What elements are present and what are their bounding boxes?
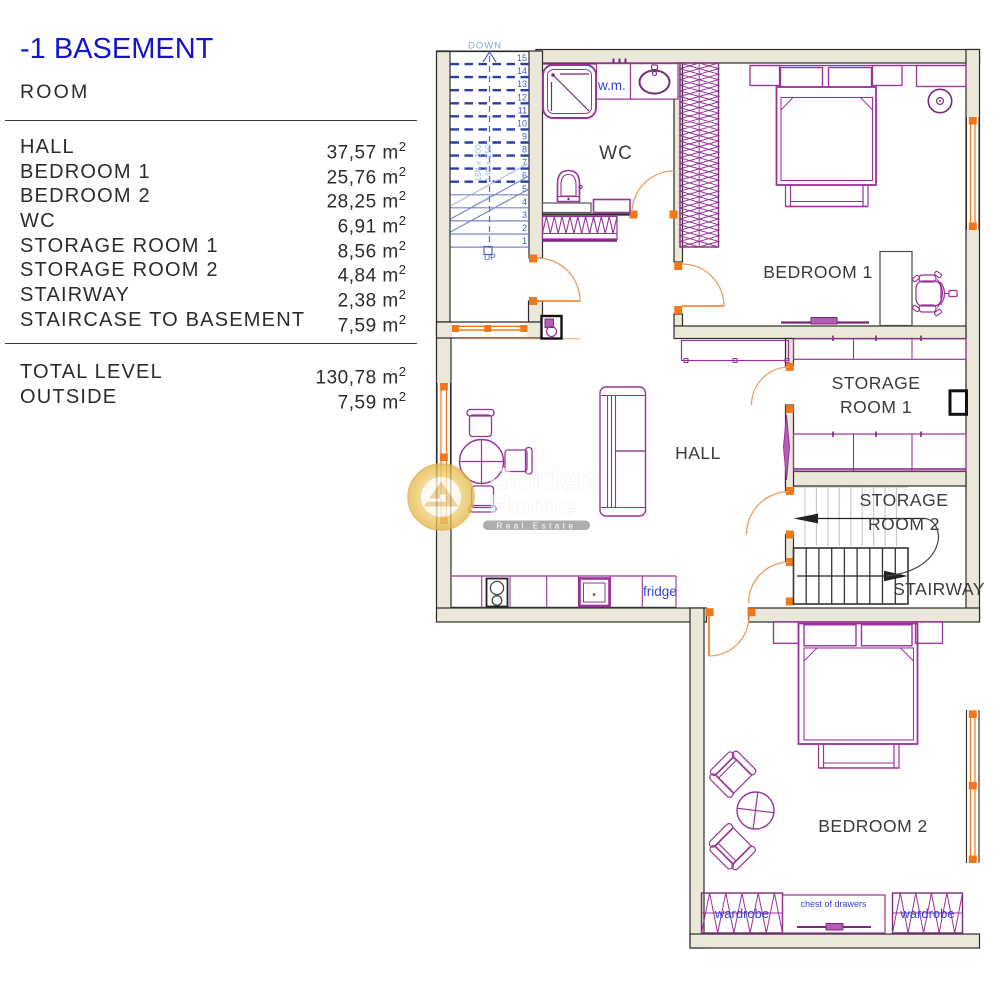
svg-text:2: 2 xyxy=(522,223,527,233)
svg-text:12: 12 xyxy=(517,92,527,102)
svg-text:13: 13 xyxy=(517,79,527,89)
svg-text:DOWN: DOWN xyxy=(468,41,502,52)
svg-text:WC: WC xyxy=(599,143,633,164)
svg-text:HALL: HALL xyxy=(675,443,721,463)
svg-text:9: 9 xyxy=(522,132,527,142)
svg-text:8: 8 xyxy=(522,145,527,155)
svg-text:158 x 200: 158 x 200 xyxy=(473,144,483,182)
svg-text:3: 3 xyxy=(522,210,527,220)
svg-text:10: 10 xyxy=(517,118,527,128)
svg-text:Home: Home xyxy=(489,488,575,523)
svg-text:ROOM 2: ROOM 2 xyxy=(868,514,940,534)
svg-text:BEDROOM 2: BEDROOM 2 xyxy=(818,816,928,836)
svg-text:4: 4 xyxy=(522,197,527,207)
svg-text:14: 14 xyxy=(517,66,527,76)
svg-text:1: 1 xyxy=(522,236,527,246)
svg-text:BEDROOM 1: BEDROOM 1 xyxy=(763,262,873,282)
svg-text:UP: UP xyxy=(484,252,496,262)
svg-text:STAIRWAY: STAIRWAY xyxy=(893,579,985,599)
svg-text:STORAGE: STORAGE xyxy=(832,373,921,393)
svg-text:140 x 250: 140 x 250 xyxy=(483,144,493,182)
svg-text:ROOM 1: ROOM 1 xyxy=(840,397,912,417)
svg-text:fridge: fridge xyxy=(643,584,677,599)
svg-text:STORAGE: STORAGE xyxy=(860,490,949,510)
svg-text:wardrobe: wardrobe xyxy=(899,906,954,921)
svg-text:Real Estate: Real Estate xyxy=(497,521,577,530)
svg-text:15: 15 xyxy=(517,53,527,63)
svg-text:chest of drawers: chest of drawers xyxy=(800,899,867,909)
svg-text:wardrobe: wardrobe xyxy=(714,906,769,921)
svg-text:w.m.: w.m. xyxy=(597,78,626,93)
svg-text:11: 11 xyxy=(518,105,527,115)
